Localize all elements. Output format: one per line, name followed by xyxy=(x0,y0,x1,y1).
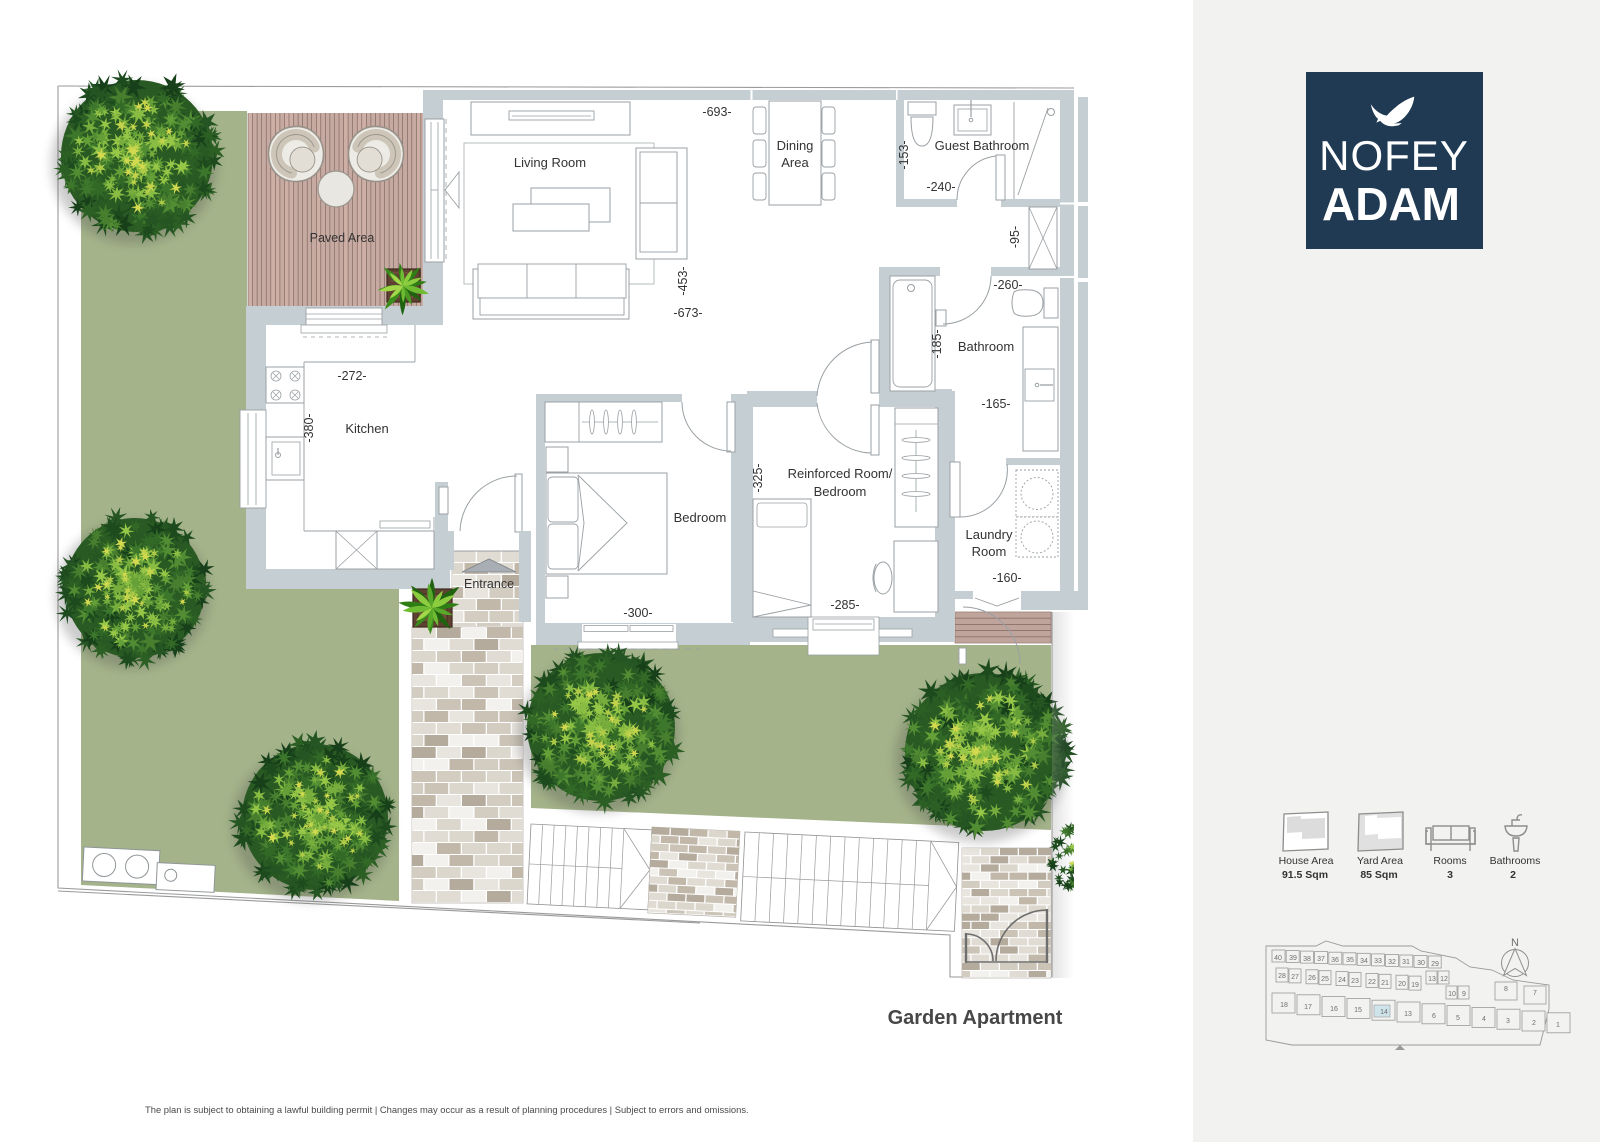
svg-text:34: 34 xyxy=(1360,958,1368,965)
svg-text:Entrance: Entrance xyxy=(464,577,514,591)
svg-text:21: 21 xyxy=(1381,980,1389,987)
svg-text:Room: Room xyxy=(972,544,1007,559)
svg-text:39: 39 xyxy=(1289,955,1297,962)
svg-text:-285-: -285- xyxy=(830,598,859,612)
svg-text:-160-: -160- xyxy=(992,571,1021,585)
svg-text:Bedroom: Bedroom xyxy=(674,510,727,525)
svg-text:13: 13 xyxy=(1404,1011,1412,1018)
svg-text:-240-: -240- xyxy=(926,180,955,194)
svg-text:2: 2 xyxy=(1532,1020,1536,1027)
svg-text:24: 24 xyxy=(1338,977,1346,984)
svg-text:Living Room: Living Room xyxy=(514,155,586,170)
svg-text:91.5 Sqm: 91.5 Sqm xyxy=(1282,869,1328,881)
svg-text:19: 19 xyxy=(1411,982,1419,989)
svg-text:Yard Area: Yard Area xyxy=(1357,855,1403,867)
svg-text:17: 17 xyxy=(1304,1004,1312,1011)
svg-text:35: 35 xyxy=(1346,957,1354,964)
svg-text:16: 16 xyxy=(1330,1006,1338,1013)
svg-text:14: 14 xyxy=(1380,1009,1388,1016)
svg-text:12: 12 xyxy=(1440,976,1448,983)
svg-text:33: 33 xyxy=(1374,958,1382,965)
svg-text:Paved Area: Paved Area xyxy=(310,231,375,245)
svg-text:-453-: -453- xyxy=(676,266,690,295)
svg-text:20: 20 xyxy=(1398,981,1406,988)
svg-text:40: 40 xyxy=(1274,955,1282,962)
svg-text:Bathroom: Bathroom xyxy=(958,339,1014,354)
svg-text:22: 22 xyxy=(1368,979,1376,986)
svg-text:-165-: -165- xyxy=(981,397,1010,411)
svg-text:13: 13 xyxy=(1428,976,1436,983)
svg-text:-272-: -272- xyxy=(337,369,366,383)
svg-text:-260-: -260- xyxy=(993,278,1022,292)
svg-text:85 Sqm: 85 Sqm xyxy=(1360,869,1397,881)
svg-text:-153-: -153- xyxy=(897,140,911,169)
svg-text:Guest Bathroom: Guest Bathroom xyxy=(935,138,1030,153)
svg-text:32: 32 xyxy=(1388,959,1396,966)
svg-text:15: 15 xyxy=(1354,1007,1362,1014)
svg-text:36: 36 xyxy=(1331,957,1339,964)
svg-text:5: 5 xyxy=(1456,1015,1460,1022)
svg-text:Bathrooms: Bathrooms xyxy=(1490,855,1541,867)
svg-text:3: 3 xyxy=(1506,1018,1510,1025)
svg-text:26: 26 xyxy=(1308,975,1316,982)
svg-text:37: 37 xyxy=(1317,956,1325,963)
svg-text:-673-: -673- xyxy=(673,306,702,320)
svg-text:2: 2 xyxy=(1510,869,1516,881)
svg-text:Garden Apartment: Garden Apartment xyxy=(888,1007,1063,1029)
svg-text:4: 4 xyxy=(1482,1016,1486,1023)
svg-text:23: 23 xyxy=(1351,978,1359,985)
svg-text:-300-: -300- xyxy=(623,606,652,620)
svg-text:Kitchen: Kitchen xyxy=(345,421,388,436)
svg-text:-185-: -185- xyxy=(930,329,944,358)
svg-text:27: 27 xyxy=(1291,974,1299,981)
svg-text:Rooms: Rooms xyxy=(1433,855,1466,867)
svg-text:Laundry: Laundry xyxy=(966,527,1013,542)
svg-text:28: 28 xyxy=(1278,973,1286,980)
svg-text:29: 29 xyxy=(1431,961,1439,968)
svg-text:The plan is subject to obtaini: The plan is subject to obtaining a lawfu… xyxy=(145,1104,749,1115)
svg-text:-95-: -95- xyxy=(1008,226,1022,248)
svg-text:8: 8 xyxy=(1504,986,1508,993)
svg-text:N: N xyxy=(1511,937,1519,949)
svg-text:18: 18 xyxy=(1280,1002,1288,1009)
svg-text:6: 6 xyxy=(1432,1013,1436,1020)
svg-text:7: 7 xyxy=(1533,990,1537,997)
svg-text:1: 1 xyxy=(1556,1022,1560,1029)
svg-text:Dining: Dining xyxy=(777,138,814,153)
svg-text:30: 30 xyxy=(1417,960,1425,967)
svg-text:10: 10 xyxy=(1448,991,1456,998)
svg-text:-325-: -325- xyxy=(751,463,765,492)
svg-text:9: 9 xyxy=(1462,991,1466,998)
svg-text:31: 31 xyxy=(1402,959,1410,966)
svg-text:NOFEY: NOFEY xyxy=(1319,132,1469,179)
svg-text:House Area: House Area xyxy=(1279,855,1334,867)
svg-text:25: 25 xyxy=(1321,976,1329,983)
svg-text:-380-: -380- xyxy=(302,413,316,442)
svg-text:38: 38 xyxy=(1303,956,1311,963)
svg-text:-693-: -693- xyxy=(702,105,731,119)
svg-text:Reinforced Room/: Reinforced Room/ xyxy=(788,466,893,481)
svg-text:3: 3 xyxy=(1447,869,1453,881)
svg-text:Area: Area xyxy=(781,155,809,170)
svg-text:ADAM: ADAM xyxy=(1322,178,1460,230)
svg-text:Bedroom: Bedroom xyxy=(814,484,867,499)
